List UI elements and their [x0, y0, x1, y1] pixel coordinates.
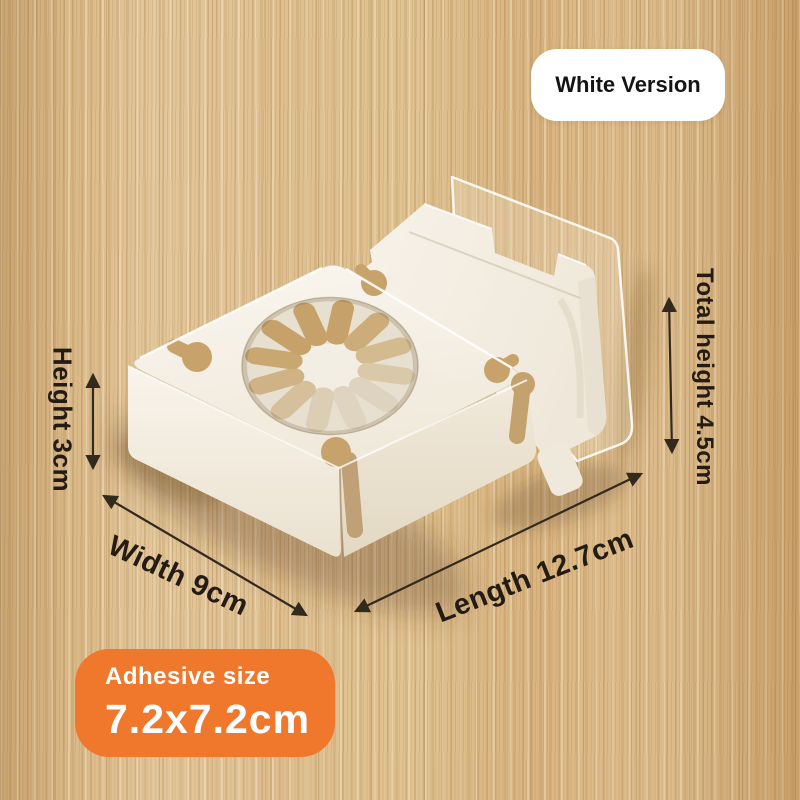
adhesive-size-badge: Adhesive size 7.2x7.2cm	[75, 649, 335, 757]
white-version-badge: White Version	[531, 49, 725, 121]
adhesive-size-title: Adhesive size	[105, 663, 335, 691]
white-version-label: White Version	[555, 72, 700, 98]
height-dimension-label: Height 3cm	[47, 345, 78, 495]
total-height-dimension-label: Total height 4.5cm	[690, 268, 718, 484]
adhesive-size-value: 7.2x7.2cm	[105, 696, 335, 743]
product-image-canvas: Height 3cm Total height 4.5cm Width 9cm …	[0, 0, 800, 800]
total-height-arrow	[669, 299, 672, 452]
